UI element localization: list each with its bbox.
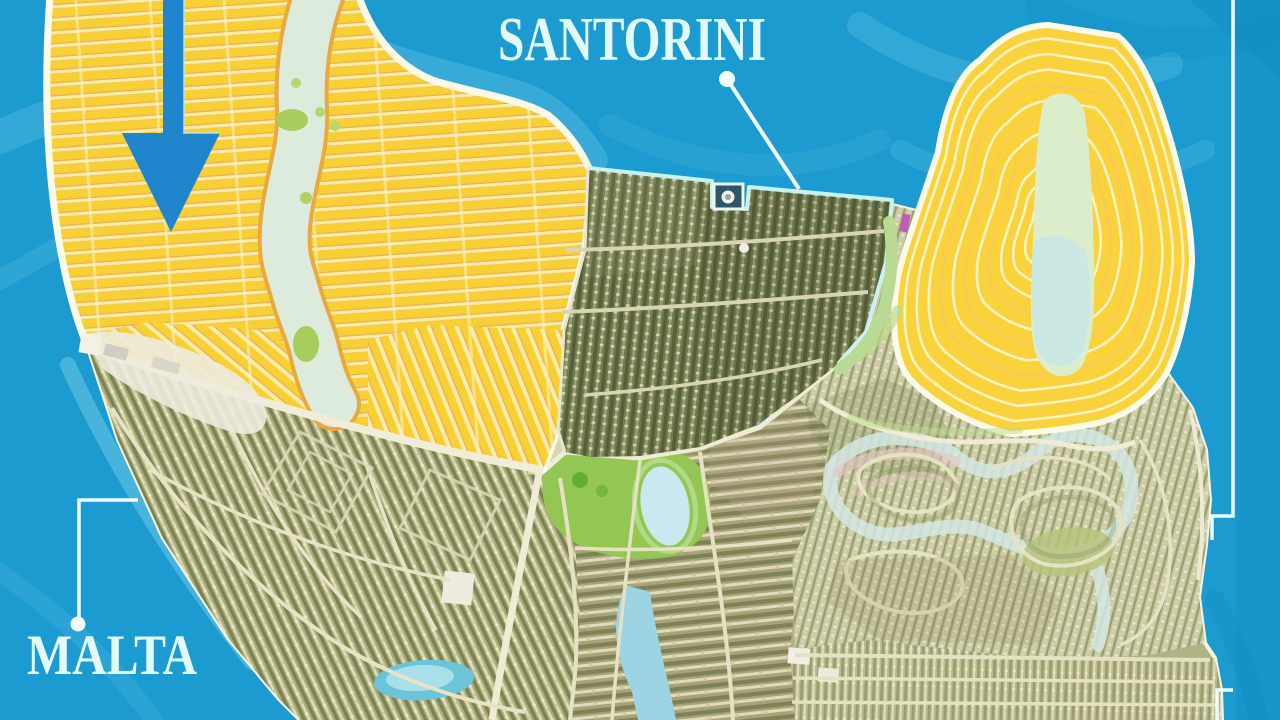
svg-text:MALTA: MALTA	[27, 624, 197, 687]
svg-text:SANTORINI: SANTORINI	[498, 6, 766, 74]
